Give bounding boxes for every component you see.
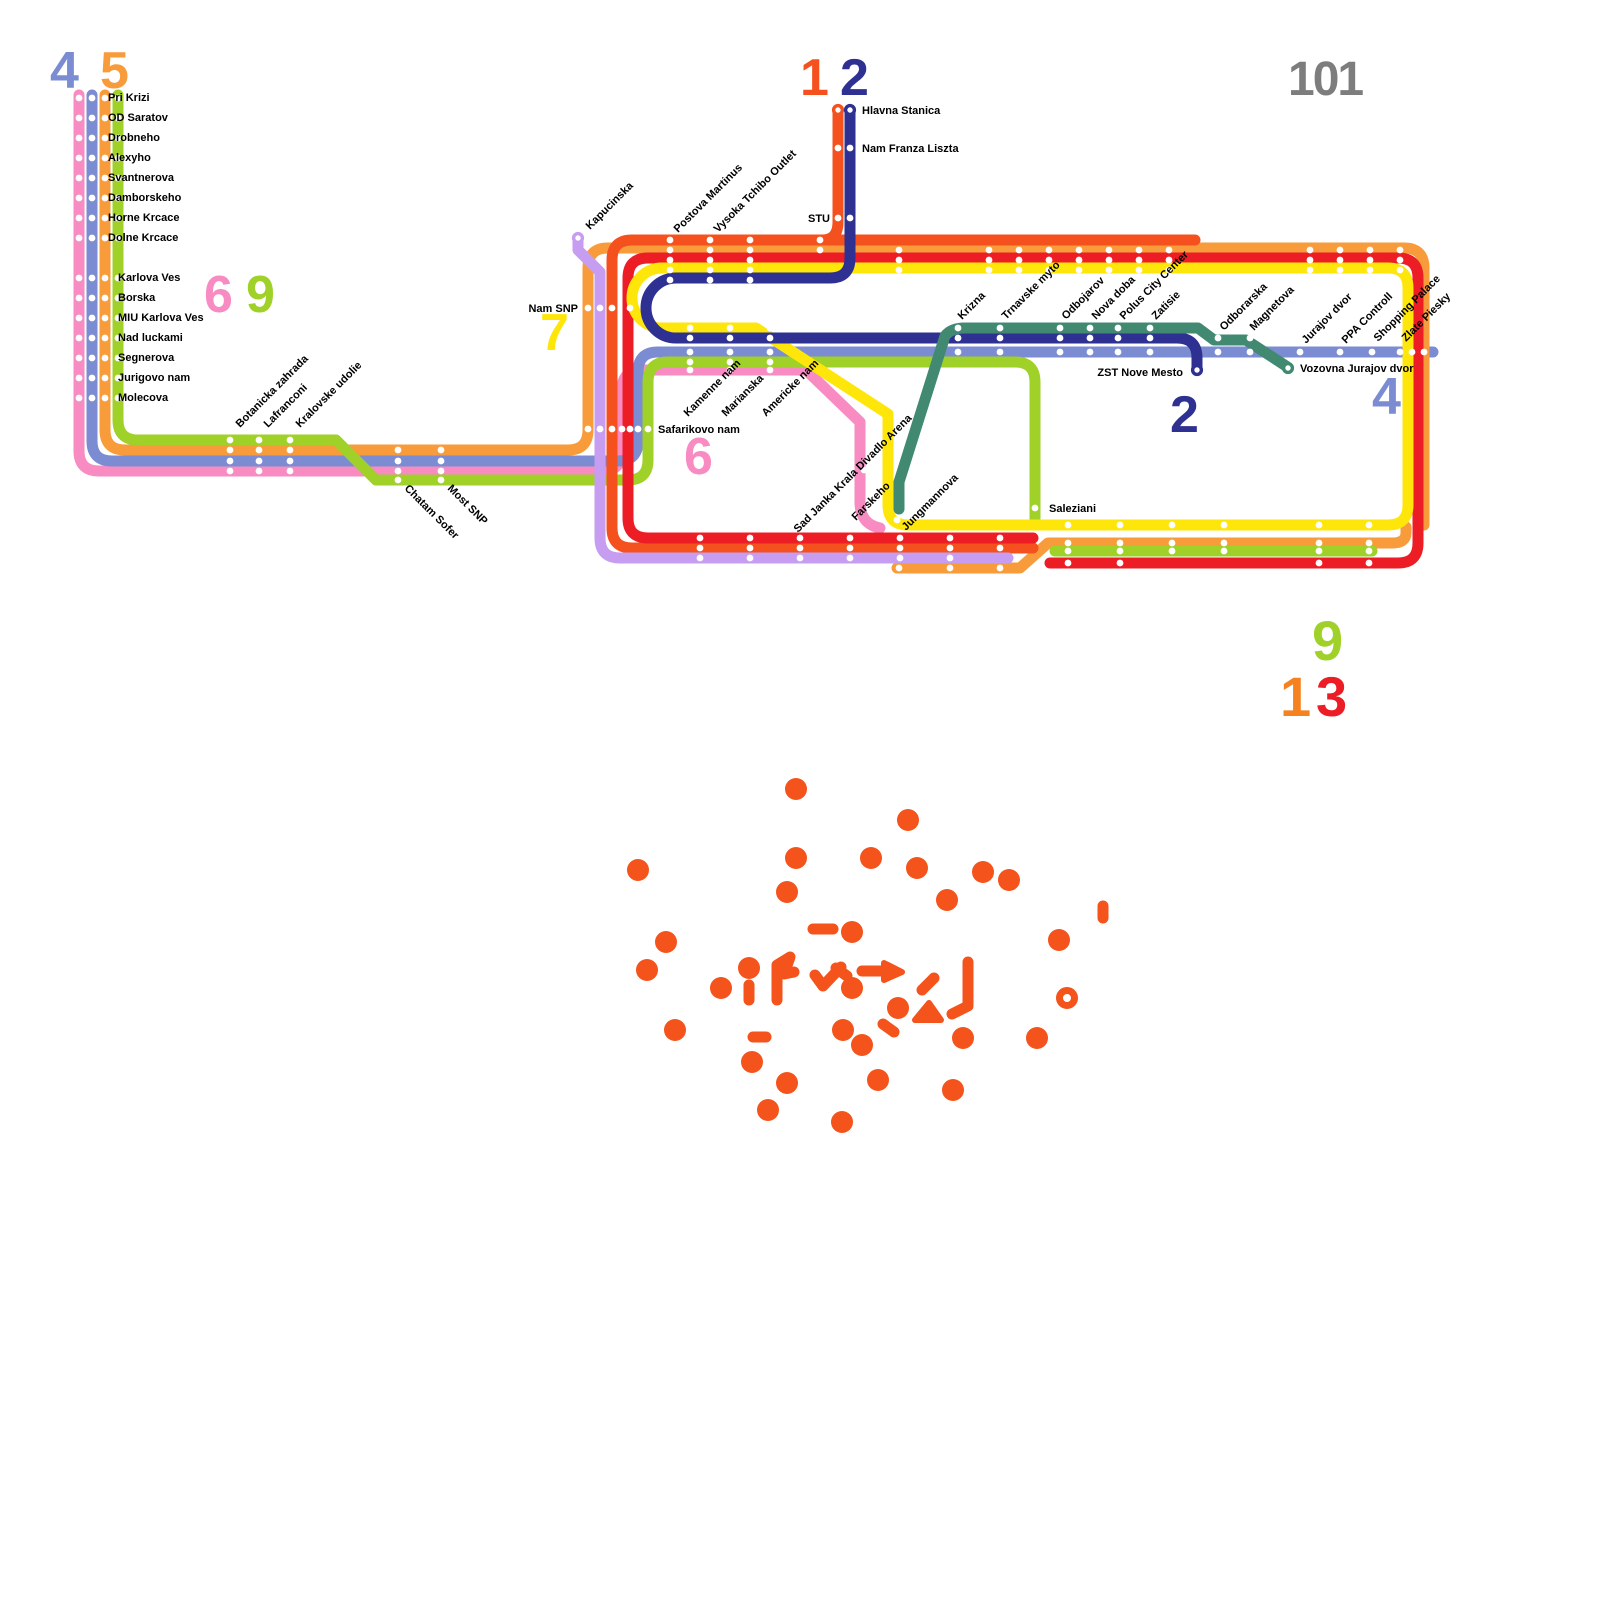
scatter-shape [777,957,794,1000]
station-dot [1221,540,1228,547]
scatter-dot [841,921,863,943]
station-dot [76,195,83,202]
station-dot [627,305,634,312]
scatter-dot [1026,1027,1048,1049]
station-dot [76,275,83,282]
scatter-dot [776,881,798,903]
station-dot [667,267,674,274]
station-label: Dolne Krcace [108,232,178,244]
station-dot [227,437,234,444]
station-dot [1046,247,1053,254]
scatter-triangle [915,1003,941,1020]
station-label: Horne Krcace [108,212,180,224]
station-label: Most SNP [445,483,490,528]
station-dot [76,235,83,242]
station-dot [997,545,1004,552]
station-dot [227,458,234,465]
scatter-ring-dot [1060,991,1075,1006]
station-dot [847,145,854,152]
station-dot [102,335,109,342]
station-dot [986,257,993,264]
station-dot [76,215,83,222]
station-label: Drobneho [108,132,160,144]
scatter-dot [972,861,994,883]
station-dot [687,359,694,366]
station-dot [627,426,634,433]
station-label: Svantnerova [108,172,175,184]
station-dot [1337,257,1344,264]
station-dot [1215,335,1222,342]
station-dot [817,247,824,254]
station-dot [597,305,604,312]
station-dot [1397,257,1404,264]
station-dot [667,237,674,244]
station-dot [287,447,294,454]
station-dot [1147,325,1154,332]
scatter-dot [851,1034,873,1056]
station-dot [687,367,694,374]
station-dot [1316,560,1323,567]
station-dot [395,447,402,454]
station-dot [1087,335,1094,342]
station-dot [76,135,83,142]
station-dot [1337,349,1344,356]
station-dot [1169,540,1176,547]
scatter-dot [627,859,649,881]
station-dot [697,545,704,552]
station-dot [1087,325,1094,332]
station-dot [1367,267,1374,274]
station-dot [1366,540,1373,547]
terminus-ring [1284,364,1293,373]
station-dot [997,335,1004,342]
station-dot [1147,335,1154,342]
scatter-dot [936,889,958,911]
route-badge-1: 1 [1280,665,1310,728]
station-dot [1115,335,1122,342]
station-dot [727,349,734,356]
station-dot [897,535,904,542]
station-dot [1117,560,1124,567]
scatter-bar [883,1024,894,1032]
station-dot [1247,335,1254,342]
station-dot [697,535,704,542]
station-dot [667,257,674,264]
metro-map-svg: Pri KriziOD SaratovDrobnehoAlexyhoSvantn… [0,0,1600,1600]
route-badge-9: 9 [246,266,273,324]
station-dot [747,247,754,254]
station-dot [847,535,854,542]
station-dot [1115,349,1122,356]
station-dot [955,325,962,332]
scatter-dot [832,1019,854,1041]
station-dot [1307,247,1314,254]
station-dot [687,349,694,356]
station-dot [102,355,109,362]
station-dot [947,545,954,552]
route-badge-101: 101 [1288,53,1363,106]
station-label: Vysoka Tchibo Outlet [712,148,799,235]
station-dot [1147,349,1154,356]
station-dot [395,477,402,484]
scatter-dot [831,1111,853,1133]
station-dot [727,335,734,342]
station-dot [767,349,774,356]
station-dot [89,195,96,202]
station-dot [438,468,445,475]
station-dot [89,95,96,102]
station-dot [1397,267,1404,274]
station-dot [707,277,714,284]
station-dot [89,115,96,122]
route-badge-1: 1 [800,49,828,107]
station-dot [1316,570,1323,577]
station-label: Alexyho [108,152,151,164]
station-dot [89,375,96,382]
scatter-dot [636,959,658,981]
station-dot [1016,257,1023,264]
station-dot [707,237,714,244]
station-dot [1297,349,1304,356]
station-dot [1409,349,1416,356]
station-dot [89,295,96,302]
station-dot [1136,247,1143,254]
station-dot [102,375,109,382]
station-dot [287,437,294,444]
station-dot [894,517,901,524]
station-dot [1397,247,1404,254]
station-dot [747,535,754,542]
station-dot [227,447,234,454]
station-dot [1115,325,1122,332]
station-dot [997,535,1004,542]
station-dot [687,325,694,332]
station-dot [947,565,954,572]
station-dot [997,325,1004,332]
station-dot [1076,247,1083,254]
station-label: Molecova [118,392,169,404]
station-dot [1076,267,1083,274]
station-dot [645,426,652,433]
scatter-bar [922,978,934,990]
station-dot [1057,325,1064,332]
station-dot [1057,335,1064,342]
station-dot [1215,349,1222,356]
station-dot [76,295,83,302]
scatter-dot [741,1051,763,1073]
station-dot [1367,257,1374,264]
station-label: MIU Karlova Ves [118,312,204,324]
scatter-dot [710,977,732,999]
station-dot [1136,267,1143,274]
station-dot [438,447,445,454]
station-label: Segnerova [118,352,175,364]
scatter-dot [776,1072,798,1094]
station-dot [76,355,83,362]
station-dot [1307,267,1314,274]
station-dot [76,155,83,162]
scatter-dot [655,931,677,953]
scatter-dot [867,1069,889,1091]
station-dot [767,325,774,332]
station-dot [847,555,854,562]
station-label: Kapucinska [584,179,637,232]
station-dot [585,426,592,433]
scatter-dot [785,778,807,800]
station-dot [1016,247,1023,254]
station-dot [89,335,96,342]
station-dot [256,468,263,475]
station-dot [1366,560,1373,567]
station-dot [707,267,714,274]
station-dot [256,447,263,454]
station-dot [1316,548,1323,555]
station-dot [707,257,714,264]
scatter-dot [757,1099,779,1121]
station-dot [947,555,954,562]
station-dot [955,349,962,356]
station-dot [1136,257,1143,264]
route-badge-4: 4 [50,42,79,100]
route-badge-9: 9 [1312,609,1342,672]
route-badge-6: 6 [684,428,712,486]
station-dot [897,555,904,562]
station-dot [76,115,83,122]
station-dot [395,458,402,465]
station-dot [287,458,294,465]
station-label: STU [808,213,830,225]
station-dot [597,426,604,433]
terminus-ring [1193,366,1202,375]
route-badge-4: 4 [1372,368,1401,426]
station-dot [1221,548,1228,555]
station-dot [1117,548,1124,555]
station-dot [727,325,734,332]
station-label: Borska [118,292,156,304]
station-dot [76,395,83,402]
station-dot [89,235,96,242]
scatter-dot [952,1027,974,1049]
station-label: Zatisie [1150,289,1183,322]
station-dot [1369,349,1376,356]
station-dot [747,555,754,562]
station-dot [1057,349,1064,356]
station-dot [896,247,903,254]
scatter-dot [738,957,760,979]
station-dot [102,295,109,302]
station-dot [747,257,754,264]
station-dot [896,257,903,264]
station-dot [1065,522,1072,529]
station-dot [287,468,294,475]
station-dot [797,535,804,542]
station-dot [767,367,774,374]
station-dot [1166,247,1173,254]
station-dot [1117,540,1124,547]
scatter-dot [785,847,807,869]
station-dot [1117,522,1124,529]
station-label: Postova Martinus [672,162,745,235]
station-dot [1106,267,1113,274]
scatter-shape [952,962,968,1014]
station-dot [102,275,109,282]
station-dot [797,545,804,552]
station-label: Karlova Ves [118,272,180,284]
station-dot [1247,349,1254,356]
station-dot [89,275,96,282]
station-label: Damborskeho [108,192,182,204]
station-label: Krizna [956,289,989,322]
station-dot [1065,548,1072,555]
route-badge-2: 2 [840,49,867,107]
station-dot [667,277,674,284]
station-dot [1421,349,1428,356]
station-dot [585,305,592,312]
station-dot [76,315,83,322]
station-dot [767,359,774,366]
station-dot [1065,560,1072,567]
route-badge-5: 5 [100,42,128,100]
station-dot [747,277,754,284]
station-dot [1367,247,1374,254]
station-dot [997,349,1004,356]
station-dot [1316,522,1323,529]
scatter-dot [860,847,882,869]
scatter-triangle [884,963,902,980]
station-dot [1397,349,1404,356]
station-dot [747,545,754,552]
station-dot [1016,267,1023,274]
route-badge-2: 2 [1170,386,1197,444]
route-badge-7: 7 [540,304,567,362]
station-dot [89,355,96,362]
station-dot [438,458,445,465]
station-dot [835,145,842,152]
station-dot [955,335,962,342]
station-dot [687,335,694,342]
station-dot [986,247,993,254]
station-dot [1221,522,1228,529]
station-dot [102,315,109,322]
station-dot [667,247,674,254]
station-dot [897,545,904,552]
station-dot [947,535,954,542]
station-dot [767,335,774,342]
scatter-dot [1048,929,1070,951]
scatter-shape [815,967,841,986]
station-dot [1337,247,1344,254]
station-dot [1307,257,1314,264]
station-dot [102,395,109,402]
station-dot [1169,548,1176,555]
station-dot [1065,540,1072,547]
route-badge-3: 3 [1316,665,1346,728]
station-dot [797,555,804,562]
station-dot [256,458,263,465]
scatter-dot [942,1079,964,1101]
station-dot [619,426,626,433]
scatter-dot [998,869,1020,891]
station-label: Saleziani [1049,503,1096,515]
station-dot [707,247,714,254]
transit-map-canvas: Pri KriziOD SaratovDrobnehoAlexyhoSvantn… [0,0,1600,1600]
station-dot [89,395,96,402]
station-dot [896,267,903,274]
station-label: Nad luckami [118,332,183,344]
station-dot [609,305,616,312]
station-dot [697,555,704,562]
station-label: Hlavna Stanica [862,105,941,117]
station-dot [1106,257,1113,264]
station-dot [1169,522,1176,529]
station-dot [256,437,263,444]
station-dot [1076,257,1083,264]
station-dot [986,267,993,274]
station-dot [89,215,96,222]
station-dot [1065,570,1072,577]
station-dot [847,215,854,222]
station-dot [896,565,903,572]
station-dot [1032,505,1039,512]
station-dot [817,237,824,244]
station-dot [89,315,96,322]
station-dot [747,267,754,274]
station-label: ZST Nove Mesto [1097,367,1183,379]
station-label: Jurigovo nam [118,372,190,384]
station-dot [89,135,96,142]
station-dot [997,565,1004,572]
station-label: Nam Franza Liszta [862,143,959,155]
station-dot [76,375,83,382]
scatter-dot [664,1019,686,1041]
station-dot [1087,349,1094,356]
station-dot [89,175,96,182]
scatter-dot [897,809,919,831]
terminus-ring [574,234,583,243]
station-dot [1337,267,1344,274]
station-dot [227,468,234,475]
station-dot [1366,522,1373,529]
station-dot [76,335,83,342]
station-dot [1366,548,1373,555]
station-dot [438,477,445,484]
station-label: OD Saratov [108,112,169,124]
station-dot [635,426,642,433]
station-dot [395,468,402,475]
station-dot [1366,570,1373,577]
scatter-dot [887,997,909,1019]
station-dot [609,426,616,433]
station-dot [1106,247,1113,254]
station-dot [747,237,754,244]
station-dot [89,155,96,162]
station-dot [847,545,854,552]
scatter-dot [906,857,928,879]
route-badge-6: 6 [204,266,232,324]
station-dot [1117,570,1124,577]
station-dot [76,175,83,182]
station-dot [1316,540,1323,547]
station-dot [835,215,842,222]
